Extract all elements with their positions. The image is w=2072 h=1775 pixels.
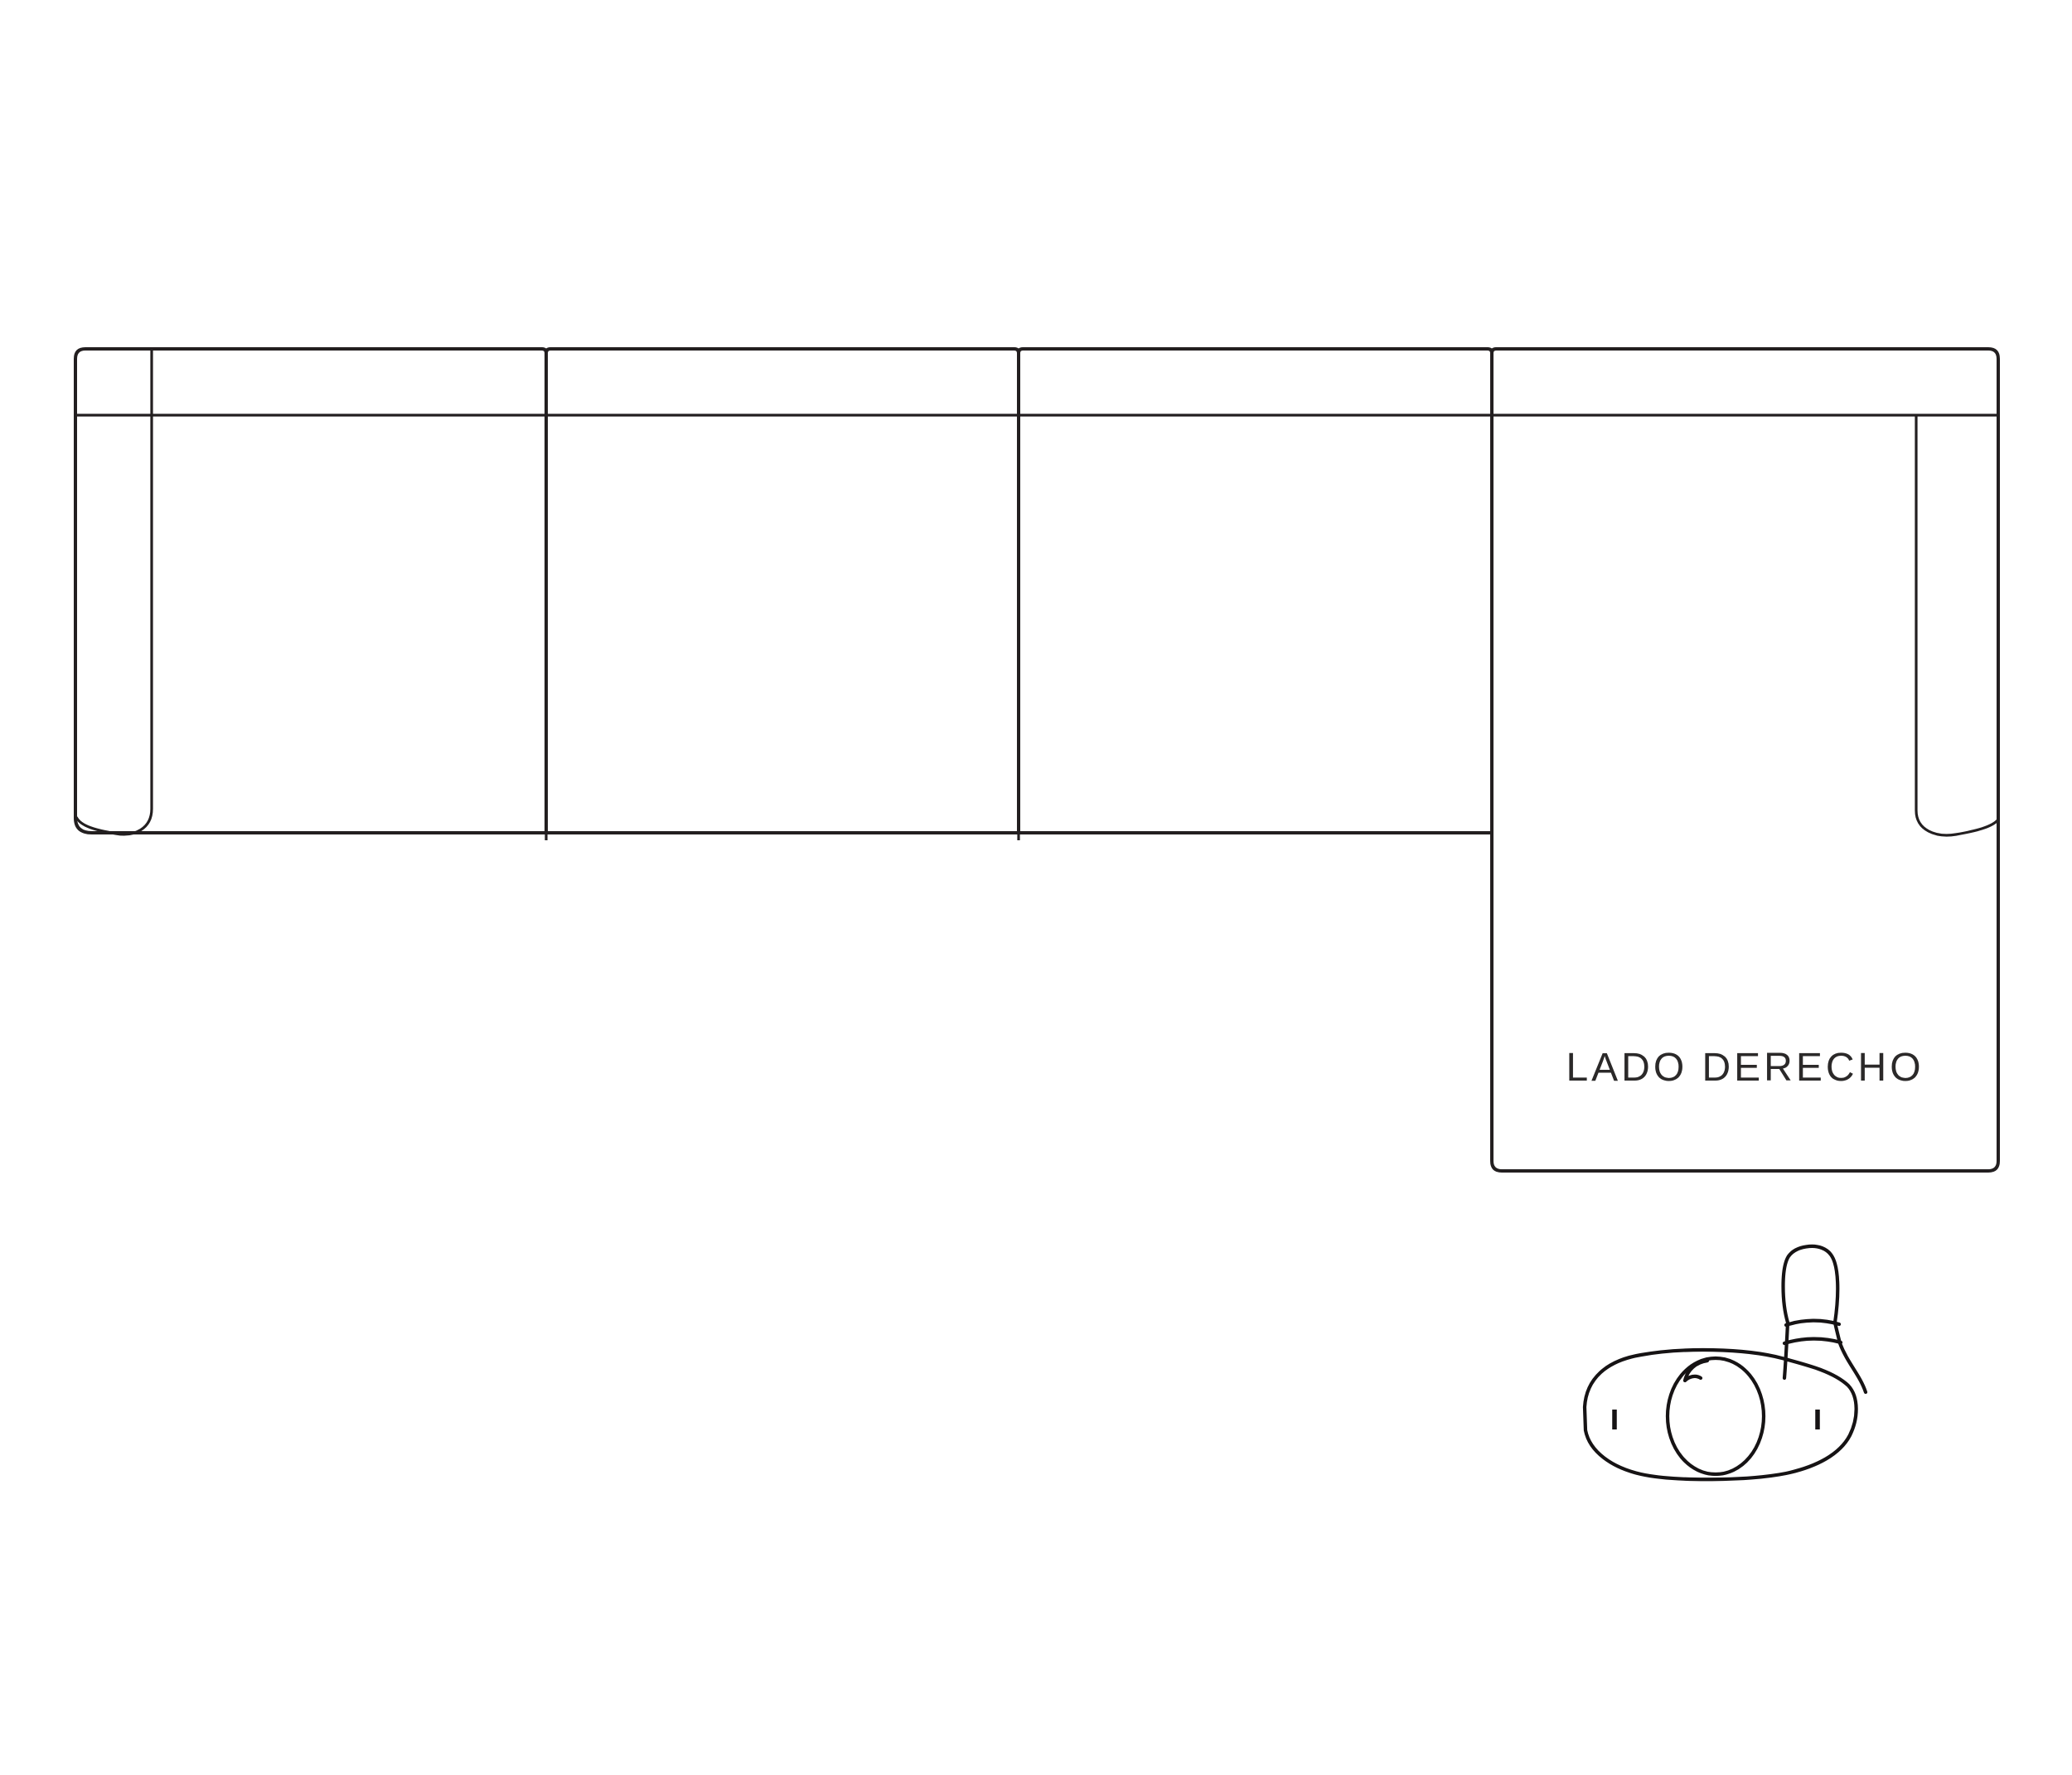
- person-top-view-icon: [1585, 1246, 1866, 1479]
- sofa-left-armrest-inner-edge: [76, 349, 152, 834]
- sofa-plan-diagram: LADO DERECHO: [0, 0, 2072, 1775]
- person-arm-band-upper: [1786, 1321, 1839, 1325]
- person-hand-outline: [1784, 1246, 1838, 1323]
- sofa-right-armrest-inner-edge: [1916, 415, 1998, 835]
- sectional-sofa-top-view-drawing: [0, 0, 2072, 1775]
- sofa-module-seat-3: [1019, 349, 1492, 833]
- sofa-module-seat-2: [546, 349, 1019, 833]
- person-head: [1668, 1358, 1764, 1474]
- chaise-label: LADO DERECHO: [1492, 1045, 1998, 1091]
- person-arm-outline: [1784, 1323, 1788, 1378]
- person-arm-band-lower: [1784, 1339, 1841, 1343]
- person-arm-outer-edge: [1835, 1323, 1866, 1392]
- sofa-module-left-arm-seat: [75, 349, 546, 833]
